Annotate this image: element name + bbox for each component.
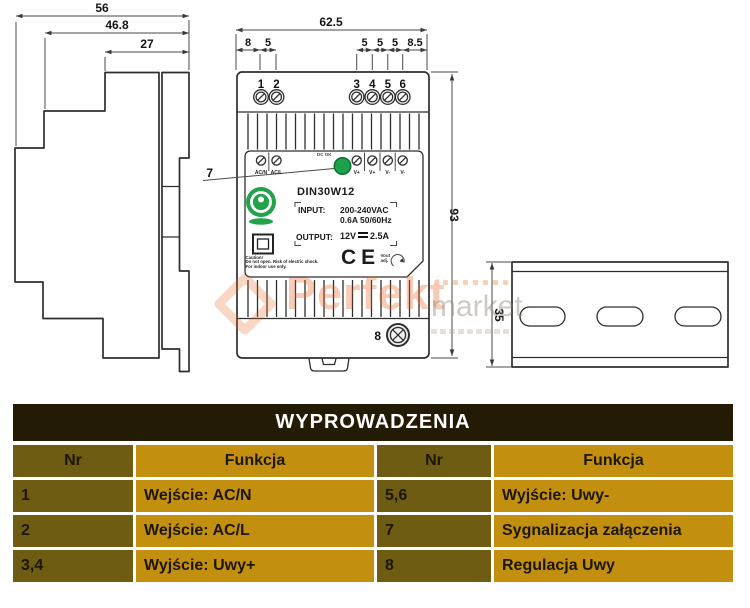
dimension-arrow: [105, 50, 112, 55]
ventilation-slots: [248, 114, 419, 318]
screw-slot: [385, 158, 391, 164]
dimension-arrow: [450, 74, 455, 81]
dimension-arrow: [254, 48, 261, 53]
input-current: 0.6A 50/60Hz: [340, 215, 392, 225]
table-header-cell: Nr: [377, 445, 491, 477]
vout-adj-label: Vout adj.: [381, 253, 396, 263]
brand-logo: [246, 187, 276, 225]
output-voltage: 12V: [340, 231, 356, 241]
screw-slot: [257, 93, 264, 100]
dimension-arrow: [490, 263, 495, 270]
screw-slot: [384, 93, 391, 100]
terminal-label: AC/N: [255, 170, 268, 176]
callout-7: 7: [206, 166, 213, 180]
screw-slot: [369, 93, 376, 100]
dimension-arrow: [490, 360, 495, 367]
dc-ok-led: [334, 158, 350, 174]
terminal-label: AC/L: [271, 170, 283, 176]
screw-slot: [370, 158, 376, 164]
caution-text: Caution! Do not open. Risk of electric s…: [246, 256, 319, 271]
din-clip: [309, 359, 349, 372]
screw-slot: [354, 158, 360, 164]
terminal-number: 6: [399, 79, 405, 91]
output-label: OUTPUT:: [296, 232, 333, 242]
dim-5d: 5: [392, 37, 398, 49]
terminal-number: 5: [385, 79, 392, 91]
table-cell: 7: [377, 515, 491, 547]
dim-27: 27: [140, 37, 154, 51]
input-voltage: 200-240VAC: [340, 205, 389, 215]
table-cell: 5,6: [377, 480, 491, 512]
table-cell: 8: [377, 550, 491, 582]
dimension-arrow: [16, 14, 23, 19]
table-cell: Wejście: AC/L: [136, 515, 374, 547]
screw-slot: [274, 158, 280, 164]
dimension-arrow: [421, 28, 428, 33]
dimension-arrow: [236, 28, 243, 33]
vout-potentiometer: [387, 324, 409, 346]
dc-symbol-icon: [358, 232, 368, 238]
dim-5a: 5: [265, 37, 271, 49]
dim-8: 8: [245, 37, 251, 49]
screw-slot: [273, 93, 280, 100]
dc-ok-label: DC OK: [317, 152, 332, 157]
dimension-arrow: [183, 50, 190, 55]
dimension-arrow: [183, 14, 190, 19]
callout-8: 8: [374, 329, 381, 343]
screw-slot: [353, 93, 360, 100]
technical-drawing: 1 2 3 4 5 6 AC/N AC/L V+ V+ V- V- 7 8: [0, 0, 750, 400]
output-rating: 12V2.5A: [340, 231, 389, 241]
front-view: 1 2 3 4 5 6 AC/N AC/L V+ V+ V- V- 7 8: [203, 72, 429, 371]
dimension-arrow: [236, 48, 243, 53]
table-header-cell: Nr: [13, 445, 133, 477]
screw-slot: [258, 158, 264, 164]
table-header-cell: Funkcja: [136, 445, 374, 477]
table-grid: NrFunkcjaNrFunkcja1Wejście: AC/N5,6Wyjśc…: [13, 445, 733, 582]
screw-slot: [399, 93, 406, 100]
dim-62_5: 62.5: [319, 15, 343, 29]
table-cell: Regulacja Uwy: [494, 550, 733, 582]
table-cell: Wyjście: Uwy+: [136, 550, 374, 582]
dim-5b: 5: [361, 37, 367, 49]
terminal-number: 3: [353, 79, 359, 91]
input-label: INPUT:: [298, 205, 325, 215]
dimension-labels: 56 46.8 27 62.5 8 5 5 5 5 8.5 93 35: [95, 1, 506, 322]
power-supply-spec-sheet: 1 2 3 4 5 6 AC/N AC/L V+ V+ V- V- 7 8: [0, 0, 750, 608]
dim-35: 35: [492, 308, 506, 322]
dim-93: 93: [447, 208, 461, 222]
terminal-label: V+: [369, 170, 375, 176]
dim-8_5: 8.5: [407, 37, 422, 49]
dimension-arrow: [450, 350, 455, 357]
table-title: WYPROWADZENIA: [13, 404, 733, 441]
terminal-label: V-: [385, 170, 390, 176]
side-view: [15, 73, 189, 372]
ce-mark: CE: [341, 246, 380, 270]
terminal-number: 4: [369, 79, 376, 91]
table-cell: 3,4: [13, 550, 133, 582]
table-cell: 1: [13, 480, 133, 512]
dimension-arrow: [183, 31, 190, 36]
table-header-cell: Funkcja: [494, 445, 733, 477]
dim-46_8: 46.8: [105, 18, 129, 32]
pinout-table: WYPROWADZENIA NrFunkcjaNrFunkcja1Wejście…: [13, 404, 733, 582]
table-cell: 2: [13, 515, 133, 547]
table-cell: Wejście: AC/N: [136, 480, 374, 512]
class-ii-icon: [253, 235, 273, 254]
table-cell: Wyjście: Uwy-: [494, 480, 733, 512]
screw-slot: [400, 158, 406, 164]
dim-56: 56: [95, 1, 109, 15]
dimension-arrow: [45, 31, 52, 36]
terminal-label: V+: [354, 170, 360, 176]
terminal-number: 1: [258, 79, 265, 91]
terminal-number: 2: [273, 79, 279, 91]
output-amps: 2.5A: [370, 231, 389, 241]
table-cell: Sygnalizacja załączenia: [494, 515, 733, 547]
model-number: DIN30W12: [297, 186, 355, 198]
din-rail-view: [512, 262, 728, 367]
dim-5c: 5: [377, 37, 383, 49]
terminal-label: V-: [400, 170, 405, 176]
caution-line: For indoor use only.: [246, 265, 319, 270]
